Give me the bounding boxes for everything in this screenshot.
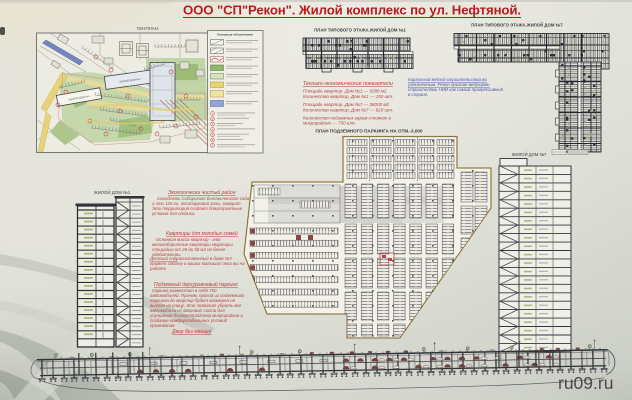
- svg-text:ПЛАН ТИПОВОГО ЭТАЖА.ЖИЛОЙ ДОМ: ПЛАН ТИПОВОГО ЭТАЖА.ЖИЛОЙ ДОМ №7: [471, 23, 563, 28]
- svg-text:Количество квартир. Дом №7 — 9: Количество квартир. Дом №7 — 920 шт.: [303, 108, 393, 113]
- svg-text:Технико-экономические показате: Технико-экономические показатели: [303, 81, 393, 87]
- svg-text:Количество квартир. Дом №1 — 1: Количество квартир. Дом №1 — 150 шт.: [303, 94, 393, 99]
- svg-text:Площадь квартир. Дом №7 — 3600: Площадь квартир. Дом №7 — 36000 м2: [303, 102, 390, 107]
- svg-text:ПЛАН ПОДЗЕМНОГО ПАРКИНГА НА ОТ: ПЛАН ПОДЗЕМНОГО ПАРКИНГА НА ОТМ.-3,000: [315, 129, 423, 134]
- svg-text:ru09.ru: ru09.ru: [558, 373, 613, 393]
- svg-text:Двор без машин!: Двор без машин!: [171, 329, 212, 335]
- svg-text:микрорайоне — 750 шт.: микрорайоне — 750 шт.: [303, 120, 356, 126]
- svg-text:ООО "СП"Рекон". Жилой комплек: ООО "СП"Рекон". Жилой комплекс по ул. Не…: [183, 3, 521, 18]
- svg-text:ГЕНПЛАН.: ГЕНПЛАН.: [137, 26, 160, 31]
- svg-text:ПЛАН ТИПОВОГО ЭТАЖА.ЖИЛОЙ ДОМ: ПЛАН ТИПОВОГО ЭТАЖА.ЖИЛОЙ ДОМ №1: [314, 28, 406, 33]
- svg-text:условия для отдыха.: условия для отдыха.: [151, 211, 196, 216]
- svg-text:проживания.: проживания.: [150, 323, 176, 328]
- svg-text:Подземный двухуровневый паркин: Подземный двухуровневый паркинг: [154, 281, 238, 288]
- svg-text:Квартиры для молодых семей: Квартиры для молодых семей: [166, 230, 238, 237]
- svg-text:Условные обозначения: Условные обозначения: [217, 33, 253, 37]
- svg-text:Площадь квартир. Дом №1 — 9286: Площадь квартир. Дом №1 — 9286 м2: [303, 89, 387, 94]
- svg-text:ЖИЛОЙ ДОМ №1: ЖИЛОЙ ДОМ №1: [94, 190, 131, 195]
- svg-text:работе.: работе.: [149, 266, 167, 271]
- svg-text:Экологически чистый район: Экологически чистый район: [168, 189, 236, 196]
- svg-text:ЖИЛОЙ ДОМ №7: ЖИЛОЙ ДОМ №7: [512, 152, 547, 157]
- svg-text:в стране.: в стране.: [408, 92, 428, 97]
